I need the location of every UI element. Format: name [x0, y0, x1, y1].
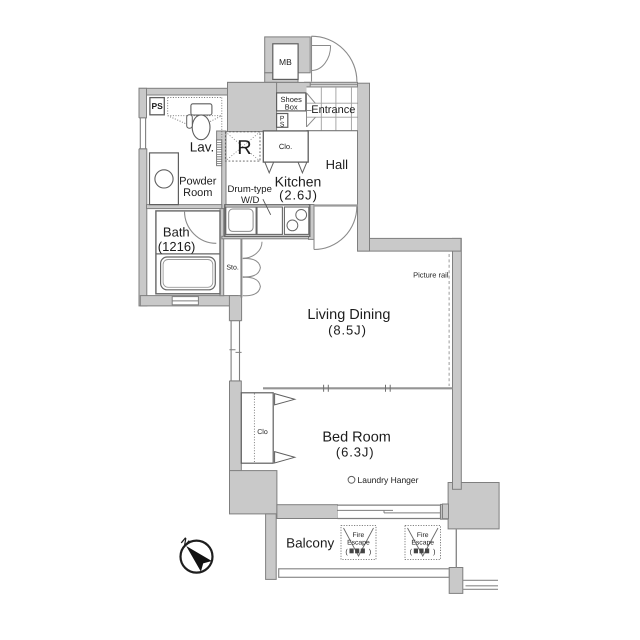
svg-text:Bed Room: Bed Room — [322, 429, 391, 445]
svg-text:PS: PS — [152, 101, 164, 111]
svg-text:Living Dining: Living Dining — [307, 307, 390, 323]
svg-text:Room: Room — [183, 187, 212, 199]
svg-text:Hall: Hall — [326, 157, 349, 172]
svg-text:Clo.: Clo. — [279, 142, 292, 151]
svg-text:(2.6J): (2.6J) — [279, 188, 318, 203]
svg-text:Sto.: Sto. — [226, 264, 239, 271]
svg-text:R: R — [237, 137, 251, 159]
svg-text:(1216): (1216) — [158, 239, 196, 254]
svg-text:Box: Box — [285, 103, 298, 112]
svg-text:Powder: Powder — [179, 176, 217, 188]
svg-text:Picture rail: Picture rail — [413, 271, 449, 280]
svg-text:Clo: Clo — [257, 428, 268, 436]
svg-text:W/D: W/D — [241, 195, 260, 206]
svg-text:Laundry Hanger: Laundry Hanger — [358, 475, 419, 485]
svg-text:MB: MB — [279, 57, 292, 67]
svg-text:(6.3J): (6.3J) — [336, 444, 375, 459]
svg-text:Escape: Escape — [411, 540, 434, 547]
svg-text:Drum-type: Drum-type — [228, 184, 272, 195]
svg-text:Fire: Fire — [417, 532, 429, 539]
svg-text:(8.5J): (8.5J) — [328, 322, 367, 337]
svg-text:Fire: Fire — [353, 532, 365, 539]
svg-text:): ) — [369, 548, 371, 556]
svg-text:Lav.: Lav. — [190, 140, 215, 155]
svg-text:Entrance: Entrance — [311, 104, 355, 116]
svg-text:Bath: Bath — [163, 224, 190, 239]
svg-text:Balcony: Balcony — [286, 535, 334, 550]
svg-text:): ) — [433, 548, 435, 556]
svg-text:Escape: Escape — [347, 540, 370, 547]
svg-text:S: S — [280, 122, 285, 129]
